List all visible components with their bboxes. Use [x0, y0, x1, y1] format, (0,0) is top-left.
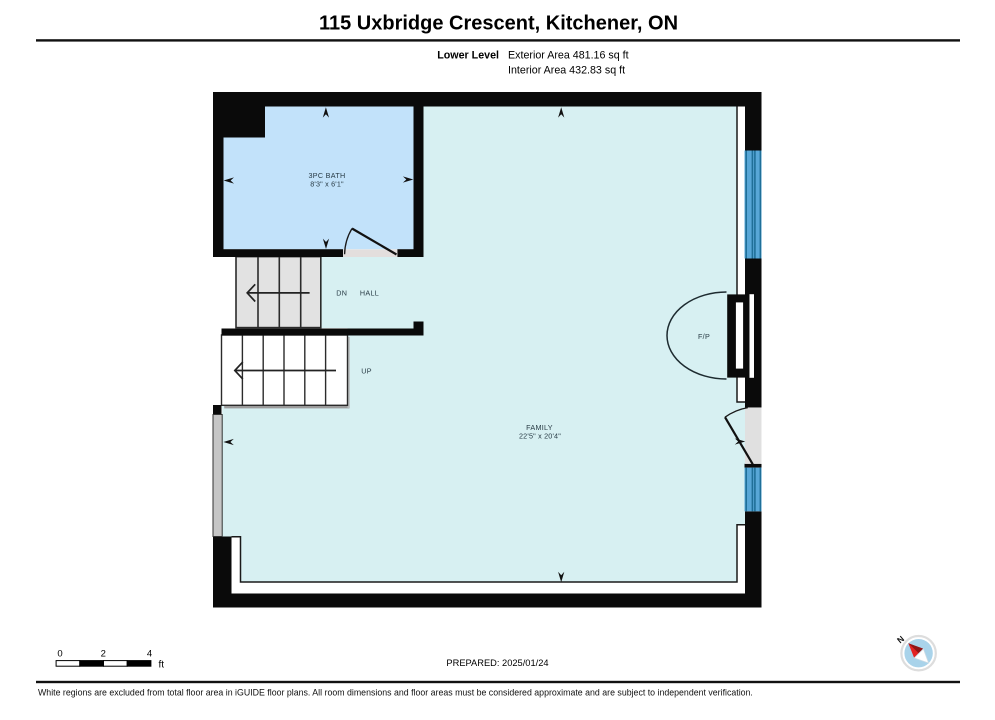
svg-text:HALL: HALL — [360, 289, 379, 298]
svg-text:Exterior Area 481.16 sq ft: Exterior Area 481.16 sq ft — [508, 49, 629, 61]
svg-text:F/P: F/P — [698, 332, 710, 341]
svg-text:2: 2 — [101, 649, 106, 660]
svg-text:8'3" x 6'1": 8'3" x 6'1" — [310, 180, 344, 189]
svg-text:4: 4 — [147, 649, 152, 660]
svg-text:UP: UP — [361, 367, 372, 376]
svg-text:Lower Level: Lower Level — [437, 49, 499, 61]
svg-text:DN: DN — [336, 289, 347, 298]
svg-text:ft: ft — [159, 660, 165, 671]
svg-text:115 Uxbridge Crescent, Kitchen: 115 Uxbridge Crescent, Kitchener, ON — [319, 13, 678, 35]
svg-text:0: 0 — [57, 649, 62, 660]
svg-text:PREPARED: 2025/01/24: PREPARED: 2025/01/24 — [446, 658, 548, 668]
svg-text:22'5" x 20'4": 22'5" x 20'4" — [519, 432, 561, 441]
svg-text:Interior Area 432.83 sq ft: Interior Area 432.83 sq ft — [508, 64, 625, 76]
svg-text:White regions are excluded fro: White regions are excluded from total fl… — [38, 688, 753, 698]
